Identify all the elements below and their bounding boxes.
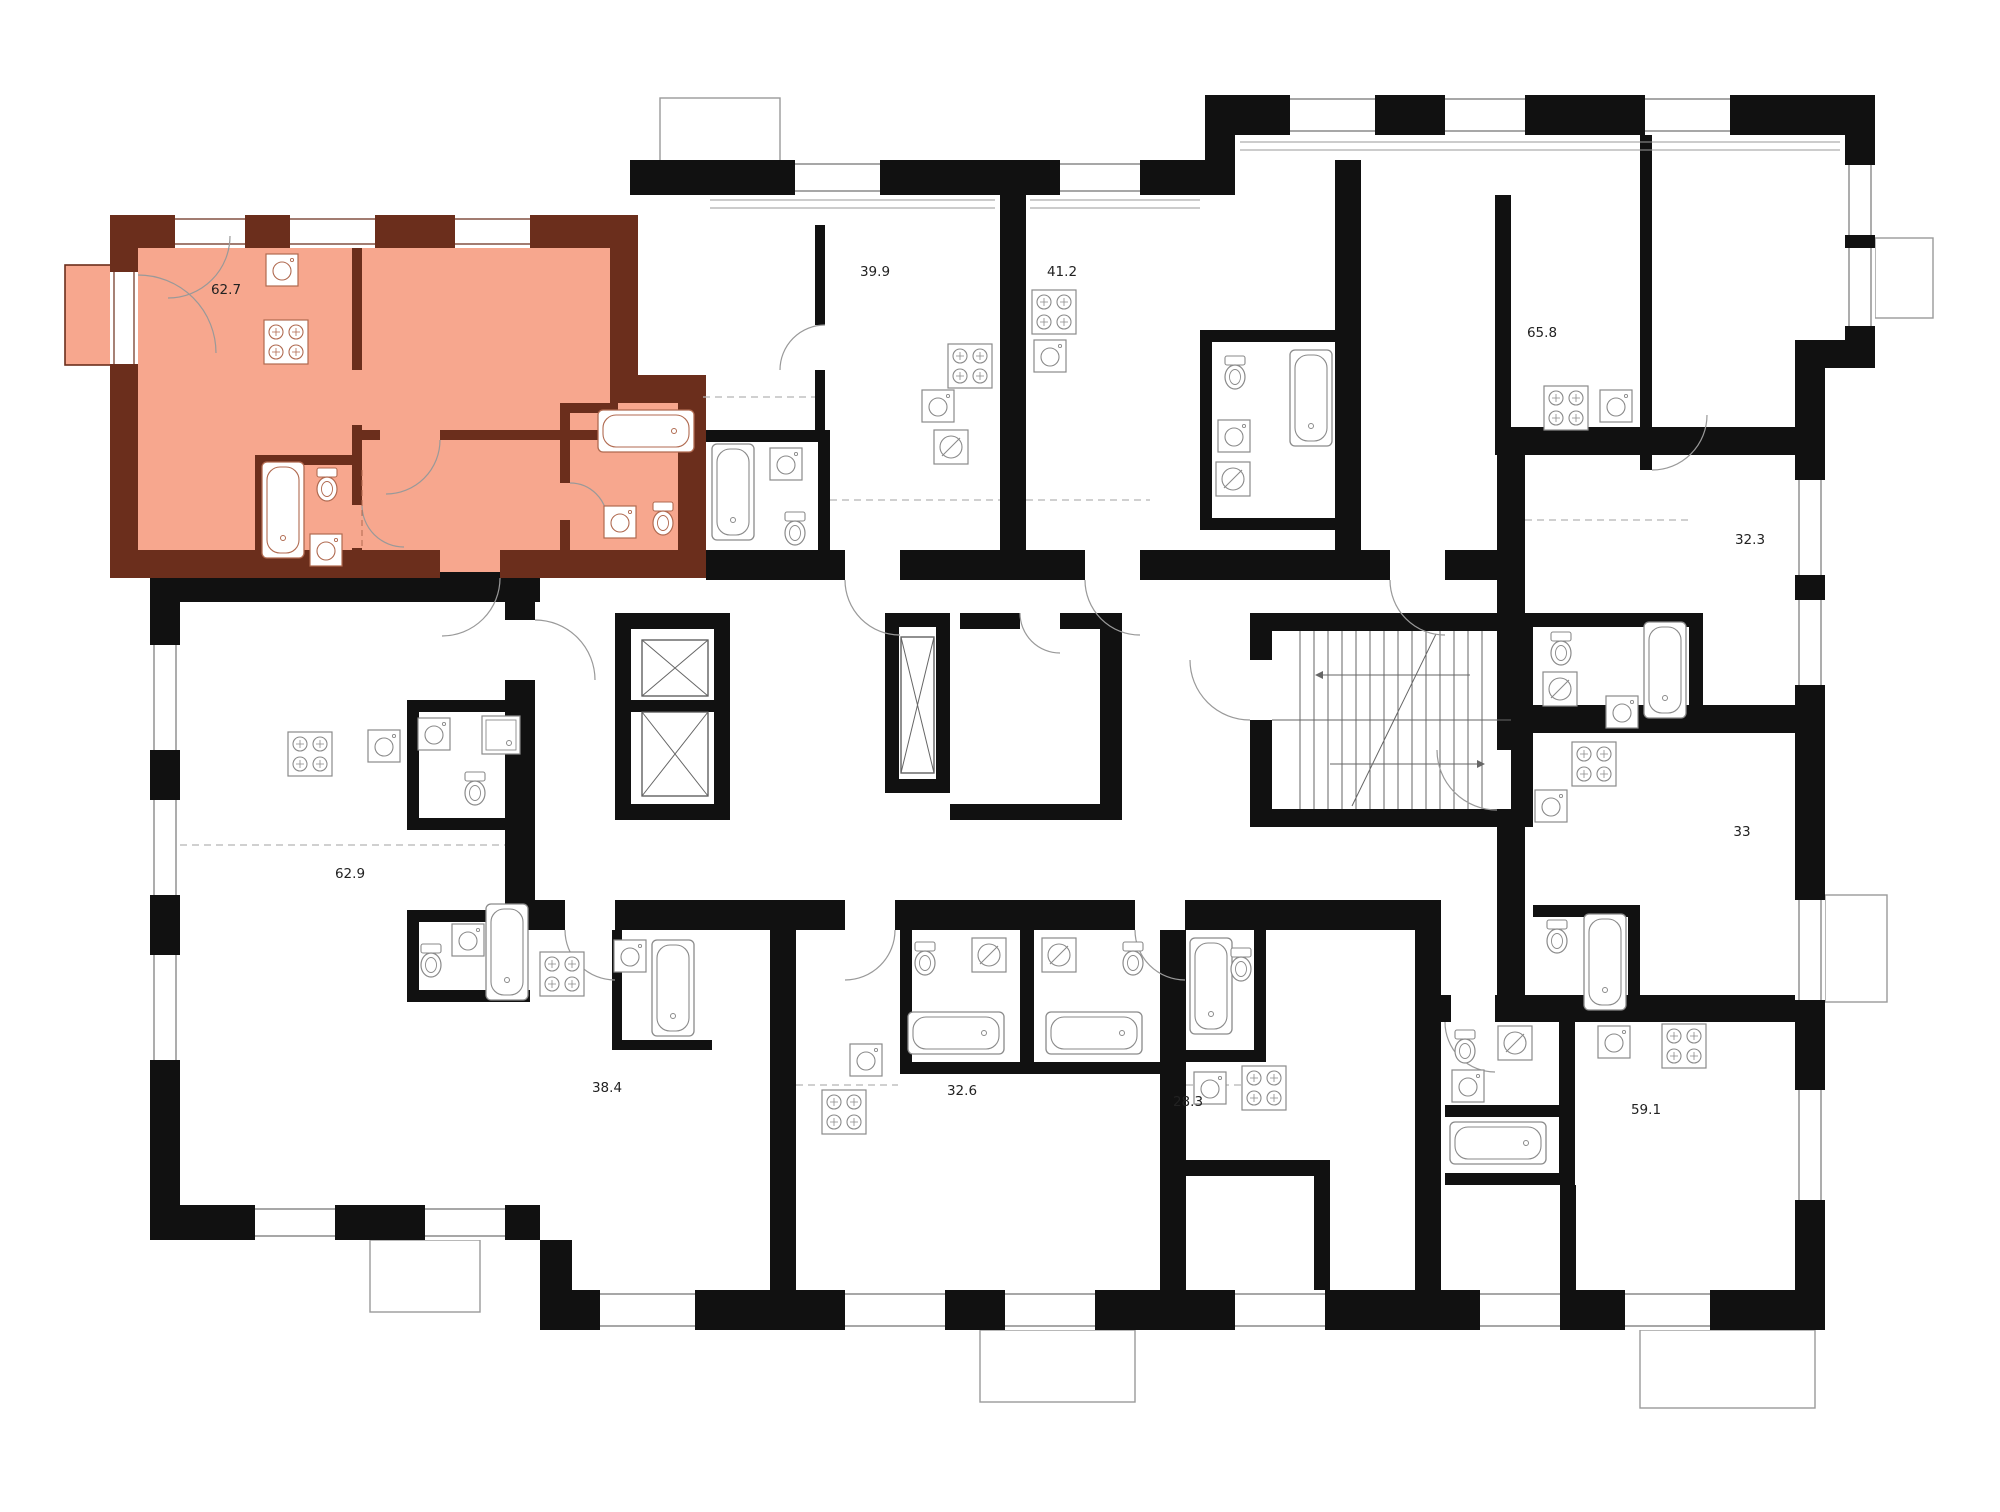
stairs-icon xyxy=(1272,631,1511,809)
balcony xyxy=(1875,238,1933,318)
selected-balcony xyxy=(65,265,113,365)
balcony xyxy=(1640,1330,1815,1408)
balcony xyxy=(980,1330,1135,1402)
balcony xyxy=(1825,895,1887,1002)
stairwell xyxy=(1272,631,1511,809)
balcony xyxy=(370,1240,480,1312)
apartment-region-39-9[interactable] xyxy=(706,195,1000,550)
apartment-region-32-3[interactable] xyxy=(1525,455,1795,705)
door-arc xyxy=(1437,750,1497,810)
apartment-region-32-6[interactable] xyxy=(796,930,1160,1290)
apartment-region-65-8[interactable] xyxy=(1361,135,1845,427)
apartment-region-28-3[interactable] xyxy=(1186,930,1415,1290)
door-arc xyxy=(1190,660,1250,720)
apartment-region-33[interactable] xyxy=(1525,733,1795,995)
apartment-region-41-2[interactable] xyxy=(1026,195,1335,550)
apartment-region-59-1[interactable] xyxy=(1441,1022,1795,1290)
apartment-region-62-7[interactable] xyxy=(113,218,706,578)
door-arc xyxy=(1020,613,1060,653)
door-arc xyxy=(535,620,595,680)
apartment-region-38-4[interactable] xyxy=(535,930,770,1290)
floor-plan-canvas: 62.7 39.9 41.2 65.8 32.3 33 62.9 38.4 32… xyxy=(0,0,2000,1512)
apartment-region-62-9[interactable] xyxy=(180,602,505,1205)
floor-plan-page: 62.7 39.9 41.2 65.8 32.3 33 62.9 38.4 32… xyxy=(0,0,2000,1512)
balcony xyxy=(660,98,780,162)
